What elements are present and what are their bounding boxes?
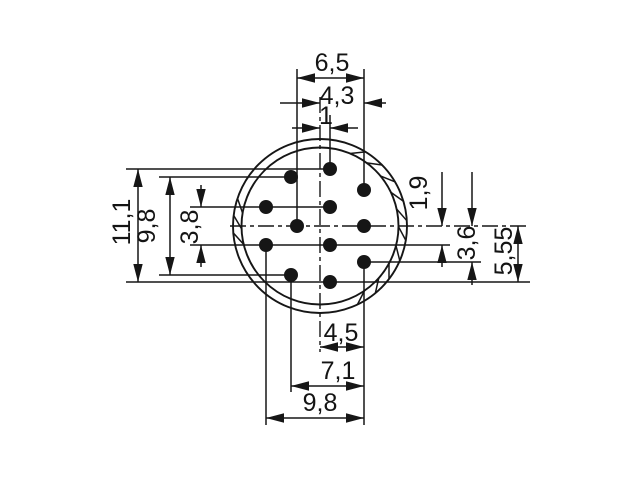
dimension-arrow	[467, 208, 476, 226]
dimension-arrow	[437, 208, 446, 226]
pin-dot	[357, 219, 371, 233]
knurl-tick	[350, 152, 365, 154]
dimension-arrow	[133, 169, 142, 187]
dim-label-right-5-55: 5,55	[490, 227, 518, 276]
knurl-tick	[237, 198, 242, 213]
dimension-arrow	[266, 413, 284, 422]
pin-dot	[357, 183, 371, 197]
knurl-tick	[396, 246, 400, 261]
dimension-arrow	[196, 245, 205, 263]
pin-dot	[290, 219, 304, 233]
knurl-tick	[398, 227, 405, 241]
dim-label-bottom-4-5: 4,5	[324, 319, 359, 347]
pin-dot	[284, 268, 298, 282]
pin-dot	[259, 238, 273, 252]
dimension-arrow	[437, 245, 446, 263]
dim-label-top-1: 1	[319, 102, 333, 130]
dim-label-top-6-5: 6,5	[315, 49, 350, 77]
dim-label-right-3-6: 3,6	[453, 226, 481, 261]
dimension-arrow	[302, 123, 320, 132]
pin-dot	[323, 200, 337, 214]
pin-dot	[284, 170, 298, 184]
pin-dot	[357, 255, 371, 269]
dimension-arrow	[346, 413, 364, 422]
dim-label-right-1-9: 1,9	[405, 176, 433, 211]
dimension-arrow	[297, 73, 315, 82]
dimension-arrow	[364, 98, 382, 107]
pin-dot	[259, 200, 273, 214]
pin-dot	[323, 162, 337, 176]
knurl-tick	[234, 215, 242, 228]
dimension-arrow	[302, 98, 320, 107]
dim-label-left-3-8: 3,8	[176, 210, 204, 245]
dimension-arrow	[133, 264, 142, 282]
drawing-canvas: 6,5 4,3 1 11,1 9,8 3,8 1,9 3,6 5,55 4,5 …	[0, 0, 640, 480]
dimension-arrow	[196, 189, 205, 207]
pin-dot	[323, 275, 337, 289]
dim-label-left-11-1: 11,1	[108, 199, 136, 246]
pin-dot	[323, 238, 337, 252]
dim-label-bottom-7-1: 7,1	[321, 357, 356, 385]
connector-insert-face-drawing: 6,5 4,3 1 11,1 9,8 3,8 1,9 3,6 5,55 4,5 …	[0, 0, 640, 480]
dimension-arrow	[165, 257, 174, 275]
dimension-arrow	[165, 177, 174, 195]
dimension-arrow	[467, 262, 476, 280]
dim-label-bottom-9-8: 9,8	[303, 389, 338, 417]
dim-label-left-9-8: 9,8	[133, 209, 161, 244]
